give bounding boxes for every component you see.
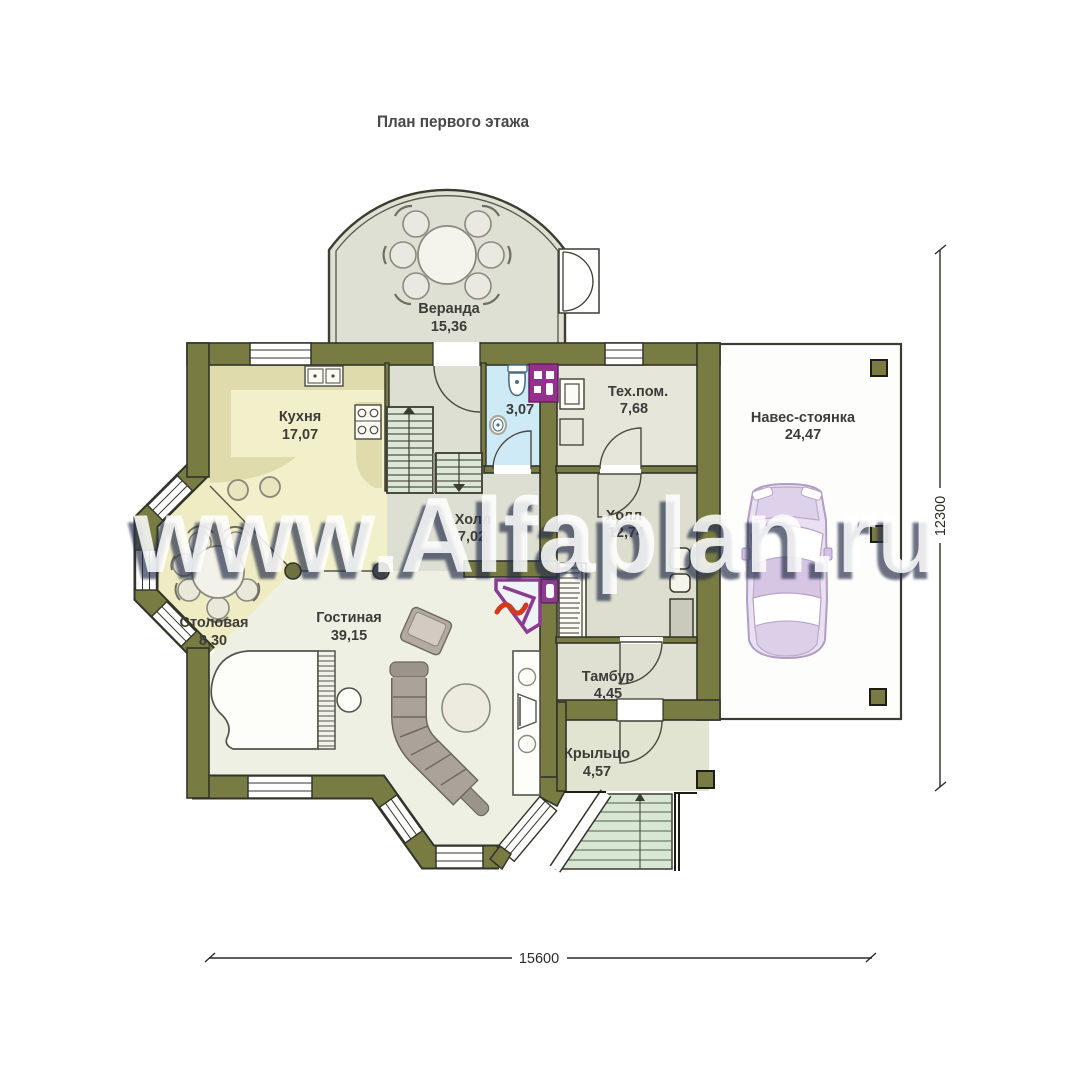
svg-text:Крыльцо: Крыльцо <box>564 746 630 762</box>
svg-text:8,30: 8,30 <box>199 633 227 649</box>
svg-text:4,57: 4,57 <box>583 764 611 780</box>
svg-text:www.Alfaplan.ru: www.Alfaplan.ru <box>133 475 940 595</box>
svg-text:15,36: 15,36 <box>431 319 467 335</box>
svg-text:4,45: 4,45 <box>594 686 622 702</box>
svg-text:39,15: 39,15 <box>331 628 367 644</box>
svg-text:Столовая: Столовая <box>179 615 248 631</box>
svg-text:3,07: 3,07 <box>506 402 534 418</box>
svg-text:Гостиная: Гостиная <box>316 610 382 626</box>
svg-text:Навес-стоянка: Навес-стоянка <box>751 410 856 426</box>
svg-text:Тамбур: Тамбур <box>582 669 635 685</box>
svg-text:Кухня: Кухня <box>279 409 321 425</box>
svg-text:Тех.пом.: Тех.пом. <box>608 384 668 400</box>
svg-text:17,07: 17,07 <box>282 427 318 443</box>
svg-text:Веранда: Веранда <box>418 301 480 317</box>
svg-text:План первого этажа: План первого этажа <box>377 112 529 131</box>
svg-text:24,47: 24,47 <box>785 427 821 443</box>
svg-text:7,68: 7,68 <box>620 401 648 417</box>
svg-text:15600: 15600 <box>519 951 559 967</box>
